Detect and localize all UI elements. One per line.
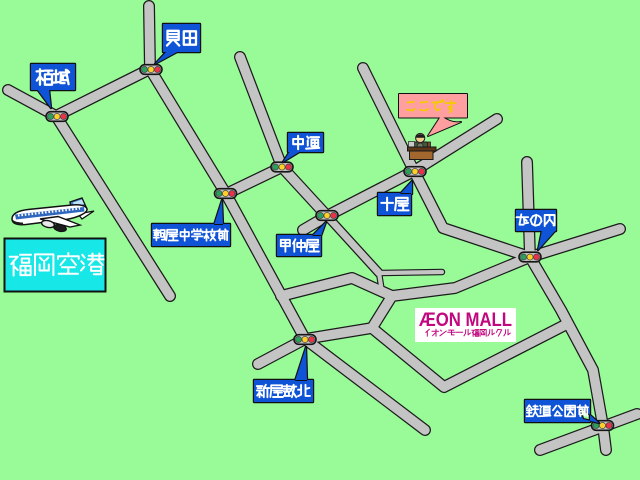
svg-text:ÆON MALL: ÆON MALL <box>419 310 512 331</box>
